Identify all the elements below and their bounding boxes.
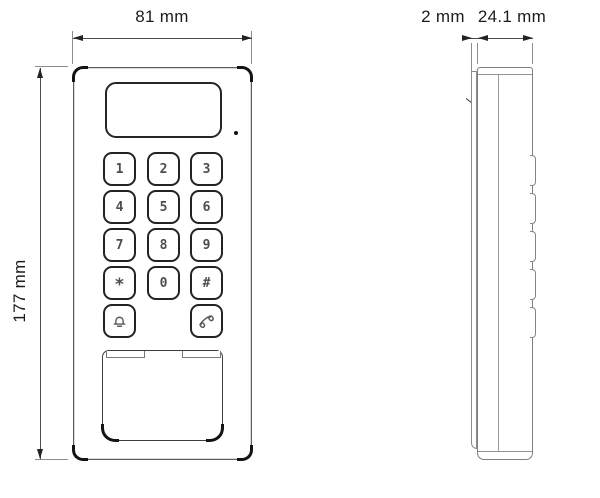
key-label: 7 <box>116 238 124 253</box>
lcd-display <box>105 82 222 138</box>
key-label: 9 <box>203 238 211 253</box>
extension-line <box>35 459 68 460</box>
extension-line <box>532 43 533 64</box>
key-label: 3 <box>203 162 211 177</box>
side-chamfer-line <box>498 75 499 451</box>
key-label: * <box>114 275 124 295</box>
width-dimension-label: 81 mm <box>112 7 212 27</box>
key-label: 4 <box>116 200 124 215</box>
side-top-seam <box>478 74 532 75</box>
card-reader-panel <box>102 350 223 441</box>
height-dimension-line <box>40 68 41 459</box>
corner-accent <box>237 445 253 461</box>
panel-seam-right <box>182 351 221 358</box>
key-label: 0 <box>160 276 168 291</box>
key-7: 7 <box>103 228 136 262</box>
arrowhead-icon <box>462 35 472 41</box>
key-label: 2 <box>160 162 168 177</box>
arrowhead-icon <box>242 35 252 41</box>
side-button-bump <box>530 155 536 186</box>
bell-button <box>103 304 136 338</box>
side-button-bump <box>530 269 536 300</box>
key-9: 9 <box>190 228 223 262</box>
key-label: # <box>203 276 211 291</box>
key-label: 1 <box>116 162 124 177</box>
side-button-bump <box>530 307 536 338</box>
arrowhead-icon <box>478 35 488 41</box>
side-bottom-seam <box>478 451 532 452</box>
arrowhead-icon <box>37 68 43 78</box>
device-side-view <box>477 67 533 460</box>
key-2: 2 <box>147 152 180 186</box>
key-star: * <box>103 266 136 300</box>
side-button-bump <box>530 231 536 262</box>
key-1: 1 <box>103 152 136 186</box>
alarm-bell-icon <box>110 312 129 331</box>
arrowhead-icon <box>37 449 43 459</box>
corner-accent <box>237 66 253 82</box>
arrowhead-icon <box>523 35 533 41</box>
key-8: 8 <box>147 228 180 262</box>
key-0: 0 <box>147 266 180 300</box>
key-label: 8 <box>160 238 168 253</box>
call-button <box>190 304 223 338</box>
key-label: 5 <box>160 200 168 215</box>
dimension-drawing: 81 mm 177 mm 2 mm 24.1 mm 1 2 3 4 5 6 7 … <box>0 0 600 498</box>
panel-seam-left <box>106 351 145 358</box>
corner-accent <box>72 66 88 82</box>
height-dimension-label: 177 mm <box>10 241 30 341</box>
key-hash: # <box>190 266 223 300</box>
side-button-bump <box>530 193 536 224</box>
microphone-hole-icon <box>234 131 238 135</box>
extension-line <box>477 43 478 64</box>
arrowhead-icon <box>73 35 83 41</box>
key-5: 5 <box>147 190 180 224</box>
key-3: 3 <box>190 152 223 186</box>
width-dimension-line <box>73 38 252 39</box>
key-6: 6 <box>190 190 223 224</box>
corner-accent <box>72 445 88 461</box>
body-depth-dimension-label: 24.1 mm <box>468 7 556 27</box>
key-label: 6 <box>203 200 211 215</box>
phone-handset-icon <box>196 311 217 332</box>
key-4: 4 <box>103 190 136 224</box>
extension-line <box>35 66 68 67</box>
